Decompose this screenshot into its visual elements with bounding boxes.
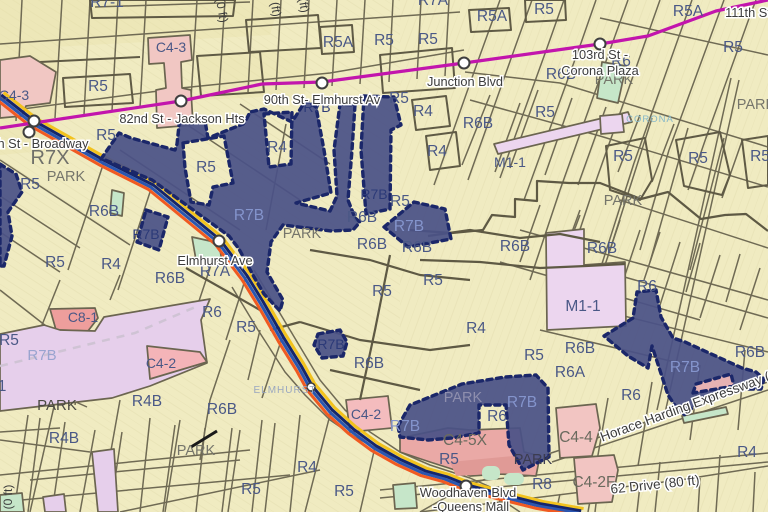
svg-text:h St - Broadway: h St - Broadway	[0, 136, 89, 151]
svg-text:Junction Blvd: Junction Blvd	[427, 74, 503, 89]
svg-text:R4: R4	[297, 459, 317, 476]
svg-text:R6: R6	[202, 304, 222, 321]
svg-text:R6B: R6B	[155, 270, 185, 287]
svg-text:R7-1: R7-1	[90, 0, 124, 11]
svg-text:R6B: R6B	[463, 115, 493, 132]
svg-text:R7B: R7B	[360, 186, 387, 202]
svg-text:(ft): (ft)	[296, 0, 312, 14]
svg-text:R6B: R6B	[500, 238, 530, 255]
svg-text:R8: R8	[532, 476, 552, 493]
svg-text:R6B: R6B	[89, 203, 119, 220]
svg-text:R4: R4	[466, 320, 486, 337]
svg-text:PARK: PARK	[737, 97, 768, 113]
svg-text:103rd St -: 103rd St -	[572, 47, 628, 62]
svg-text:R5: R5	[196, 159, 216, 176]
svg-text:90th St- Elmhurst Av: 90th St- Elmhurst Av	[264, 92, 381, 107]
svg-text:R5: R5	[389, 90, 409, 107]
svg-text:R5A: R5A	[477, 8, 508, 25]
svg-text:R5: R5	[96, 127, 116, 144]
svg-text:R5: R5	[750, 148, 768, 165]
svg-text:R7B: R7B	[394, 218, 424, 235]
svg-text:R4: R4	[413, 103, 433, 120]
svg-text:R5: R5	[688, 150, 708, 167]
svg-text:R5: R5	[372, 283, 392, 300]
svg-text:R5: R5	[88, 78, 108, 95]
svg-text:PARK: PARK	[283, 226, 322, 242]
svg-text:R5: R5	[0, 332, 19, 349]
svg-text:PARK: PARK	[47, 169, 86, 185]
svg-text:R5: R5	[236, 319, 256, 336]
svg-text:R6B: R6B	[735, 344, 765, 361]
svg-text:R4: R4	[101, 256, 121, 273]
svg-text:R4B: R4B	[132, 393, 162, 410]
svg-text:R6B: R6B	[587, 240, 617, 257]
svg-text:C4-4: C4-4	[559, 429, 593, 446]
svg-text:R5: R5	[535, 104, 555, 121]
svg-text:R5: R5	[524, 347, 544, 364]
svg-text:1: 1	[0, 378, 6, 395]
svg-text:R6B: R6B	[347, 209, 377, 226]
svg-text:R7B: R7B	[507, 394, 537, 411]
svg-text:111th St: 111th St	[725, 5, 768, 20]
svg-text:M1-1: M1-1	[494, 154, 526, 170]
svg-text:C4-5X: C4-5X	[443, 432, 488, 449]
svg-text:R5: R5	[423, 272, 443, 289]
svg-text:R7B: R7B	[132, 226, 159, 242]
svg-text:R5: R5	[20, 176, 40, 193]
svg-text:R5: R5	[334, 483, 354, 500]
svg-text:Elmhurst Ave: Elmhurst Ave	[177, 253, 252, 268]
svg-text:R5: R5	[613, 148, 633, 165]
svg-text:(0 ft): (0 ft)	[1, 485, 15, 510]
svg-text:R6B: R6B	[565, 340, 595, 357]
svg-text:R4B: R4B	[49, 430, 79, 447]
svg-text:R6B: R6B	[207, 401, 237, 418]
svg-text:R4: R4	[427, 143, 447, 160]
svg-text:C8-1: C8-1	[68, 309, 99, 325]
svg-text:C4-2: C4-2	[146, 355, 177, 371]
svg-text:R4: R4	[737, 444, 757, 461]
svg-text:R5A: R5A	[673, 3, 704, 20]
svg-text:82nd St - Jackson Hts: 82nd St - Jackson Hts	[119, 111, 244, 126]
svg-text:C4-2: C4-2	[351, 406, 382, 422]
svg-text:R6B: R6B	[357, 236, 387, 253]
svg-text:R5: R5	[374, 32, 394, 49]
svg-text:R6A: R6A	[555, 364, 586, 381]
svg-text:R5: R5	[439, 451, 459, 468]
svg-text:R7B: R7B	[390, 418, 420, 435]
svg-text:R7B: R7B	[670, 359, 700, 376]
svg-text:PARK: PARK	[444, 390, 483, 406]
svg-text:M1-1: M1-1	[565, 298, 600, 315]
svg-text:R5: R5	[390, 193, 410, 210]
svg-text:Woodhaven Blvd: Woodhaven Blvd	[420, 485, 517, 500]
svg-text:R6: R6	[487, 408, 507, 425]
svg-text:CORONA: CORONA	[626, 114, 674, 125]
svg-text:R6: R6	[637, 278, 657, 295]
svg-text:R6B: R6B	[354, 355, 384, 372]
svg-text:R7A: R7A	[418, 0, 449, 9]
svg-text:ELMHURST: ELMHURST	[253, 385, 316, 396]
svg-text:PARK: PARK	[37, 397, 77, 414]
svg-text:-Queens Mall: -Queens Mall	[433, 499, 509, 512]
svg-text:R5: R5	[534, 1, 554, 18]
svg-text:Corona Plaza: Corona Plaza	[561, 63, 639, 78]
svg-text:C4-3: C4-3	[156, 39, 187, 55]
svg-text:(ft): (ft)	[268, 1, 284, 18]
svg-text:R7B: R7B	[27, 347, 56, 364]
svg-text:R5: R5	[45, 254, 65, 271]
svg-text:R5: R5	[418, 31, 438, 48]
svg-text:PARK: PARK	[514, 452, 553, 468]
svg-text:PARK: PARK	[177, 443, 216, 459]
svg-text:R7B: R7B	[234, 207, 264, 224]
svg-text:R6: R6	[621, 387, 641, 404]
svg-text:R5: R5	[723, 39, 743, 56]
svg-text:R7B: R7B	[317, 336, 344, 352]
svg-text:PARK: PARK	[604, 193, 643, 209]
svg-text:C4-3: C4-3	[0, 87, 29, 103]
svg-text:R4: R4	[267, 139, 287, 156]
svg-text:R5: R5	[241, 481, 261, 498]
svg-text:R5A: R5A	[323, 34, 354, 51]
svg-text:R6B: R6B	[402, 239, 432, 256]
